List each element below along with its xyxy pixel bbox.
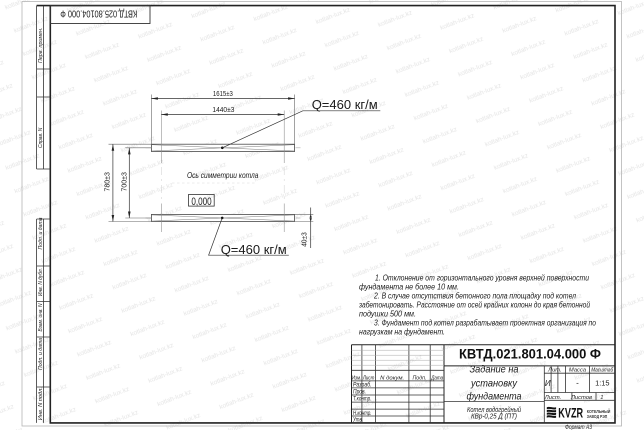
svg-text:забетонировать. Расстояние от: забетонировать. Расстояние от осей крайн… — [358, 301, 590, 310]
svg-text:Ось симметрии котла: Ось симметрии котла — [187, 170, 259, 180]
svg-text:Изм.: Изм. — [352, 376, 362, 382]
svg-text:Взам. инв. N: Взам. инв. N — [38, 303, 44, 332]
svg-text:КВТД.025.80104.000 Ф: КВТД.025.80104.000 Ф — [60, 8, 137, 19]
svg-text:Разраб.: Разраб. — [353, 382, 372, 388]
svg-text:Подп. и дата: Подп. и дата — [38, 218, 44, 250]
svg-text:Н.контр.: Н.контр. — [353, 411, 372, 417]
svg-text:40±3: 40±3 — [300, 232, 309, 247]
svg-text:1. Отклонение от горизонтально: 1. Отклонение от горизонтального уровня … — [375, 274, 589, 283]
svg-text:Q=460 кг/м: Q=460 кг/м — [221, 242, 287, 257]
svg-text:Формат А3: Формат А3 — [565, 424, 592, 430]
svg-text:Листов: Листов — [570, 395, 592, 401]
svg-text:Q=460 кг/м: Q=460 кг/м — [312, 97, 378, 112]
svg-text:нагрузкам на фундамент.: нагрузкам на фундамент. — [359, 328, 445, 337]
svg-text:1:15: 1:15 — [595, 379, 609, 388]
svg-text:Справ. N: Справ. N — [38, 127, 44, 148]
svg-text:Утв.: Утв. — [352, 418, 363, 424]
svg-text:2. В случае отсутствия бетонно: 2. В случае отсутствия бетонного пола пл… — [373, 292, 576, 301]
svg-text:-: - — [576, 379, 579, 388]
svg-text:3. Фундамент под котел разраба: 3. Фундамент под котел разрабатывает про… — [374, 319, 596, 328]
svg-text:780±3: 780±3 — [102, 172, 111, 192]
svg-text:Лист.: Лист. — [544, 395, 561, 401]
svg-text:Лист: Лист — [362, 376, 374, 382]
svg-text:Масса: Масса — [569, 367, 587, 373]
svg-text:Задание на: Задание на — [470, 363, 519, 375]
svg-text:700±3: 700±3 — [119, 172, 128, 192]
svg-text:Пров.: Пров. — [353, 390, 366, 396]
svg-text:Масштаб: Масштаб — [591, 367, 614, 373]
svg-text:КВТД.021.801.04.000 Ф: КВТД.021.801.04.000 Ф — [459, 346, 601, 362]
svg-text:ЗАВОД РЭП: ЗАВОД РЭП — [587, 414, 608, 419]
svg-text:Подп.: Подп. — [413, 376, 427, 382]
svg-text:0,000: 0,000 — [191, 196, 211, 208]
svg-text:Перв. примен.: Перв. примен. — [38, 28, 44, 64]
svg-text:Инв. N дубл.: Инв. N дубл. — [38, 268, 44, 296]
svg-text:КВр-0,25 Д (ПТ): КВр-0,25 Д (ПТ) — [471, 413, 517, 420]
svg-text:Т.контр.: Т.контр. — [353, 397, 372, 403]
svg-text:KVZR: KVZR — [558, 405, 583, 421]
svg-text:И: И — [545, 379, 551, 388]
svg-text:N докум.: N докум. — [380, 376, 404, 382]
svg-text:1440±3: 1440±3 — [212, 105, 234, 114]
svg-text:Инв. N подл.: Инв. N подл. — [38, 387, 44, 420]
svg-text:фундамента не более 10 мм.: фундамента не более 10 мм. — [359, 283, 459, 292]
svg-text:установку: установку — [470, 377, 518, 389]
svg-text:Подп. и дата: Подп. и дата — [38, 338, 44, 370]
svg-text:Дата: Дата — [430, 376, 443, 382]
svg-text:фундамента: фундамента — [467, 390, 522, 402]
svg-text:подушки 500 мм.: подушки 500 мм. — [359, 310, 416, 319]
svg-text:Лит.: Лит. — [547, 367, 562, 373]
svg-text:1615±3: 1615±3 — [213, 89, 233, 98]
svg-text:1: 1 — [600, 395, 603, 401]
